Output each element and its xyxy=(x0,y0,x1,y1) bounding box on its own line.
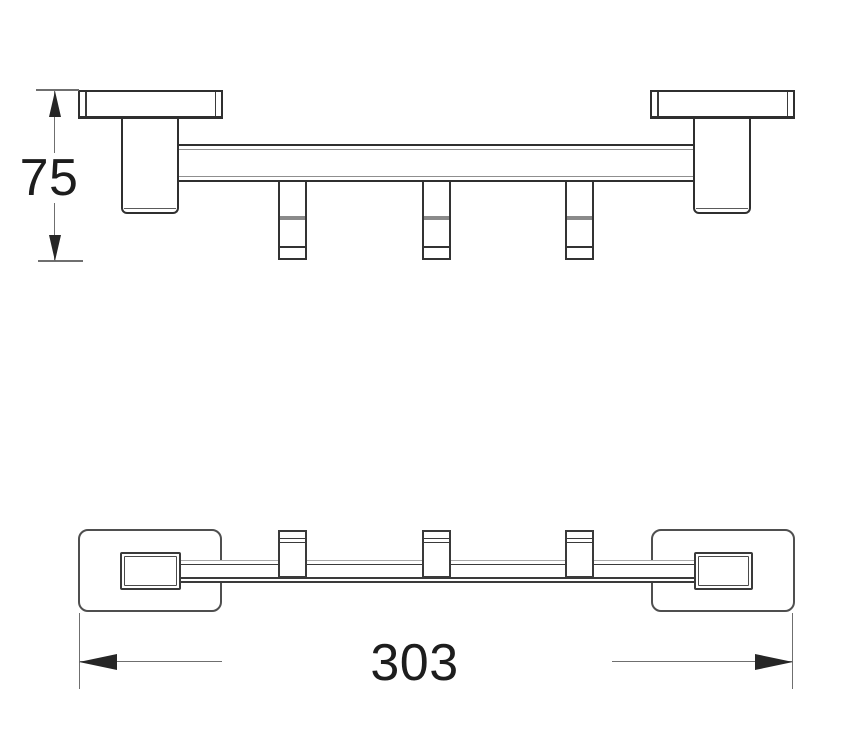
right-post-plan xyxy=(694,552,753,590)
hook-2-plan xyxy=(422,530,451,578)
hook-3-cap-line xyxy=(567,538,592,539)
hook-1-cap-line xyxy=(280,538,305,539)
arrowhead-right-icon xyxy=(755,654,793,670)
left-post-plan xyxy=(120,552,181,590)
hook-2-cap-line xyxy=(424,542,449,543)
right-post-plan-inner-line xyxy=(698,556,749,586)
hook-2-cap-line xyxy=(424,538,449,539)
hook-1-plan xyxy=(278,530,307,578)
plan-view: 303 xyxy=(0,0,845,741)
drawing-canvas: 75 xyxy=(0,0,845,741)
hook-1-cap-line xyxy=(280,542,305,543)
length-extension-line-left xyxy=(79,613,80,689)
hook-3-plan xyxy=(565,530,594,578)
arrowhead-left-icon xyxy=(79,654,117,670)
left-post-plan-inner-line xyxy=(124,556,177,586)
length-dimension-label: 303 xyxy=(352,637,477,689)
hook-3-cap-line xyxy=(567,542,592,543)
length-extension-line-right xyxy=(792,613,793,689)
